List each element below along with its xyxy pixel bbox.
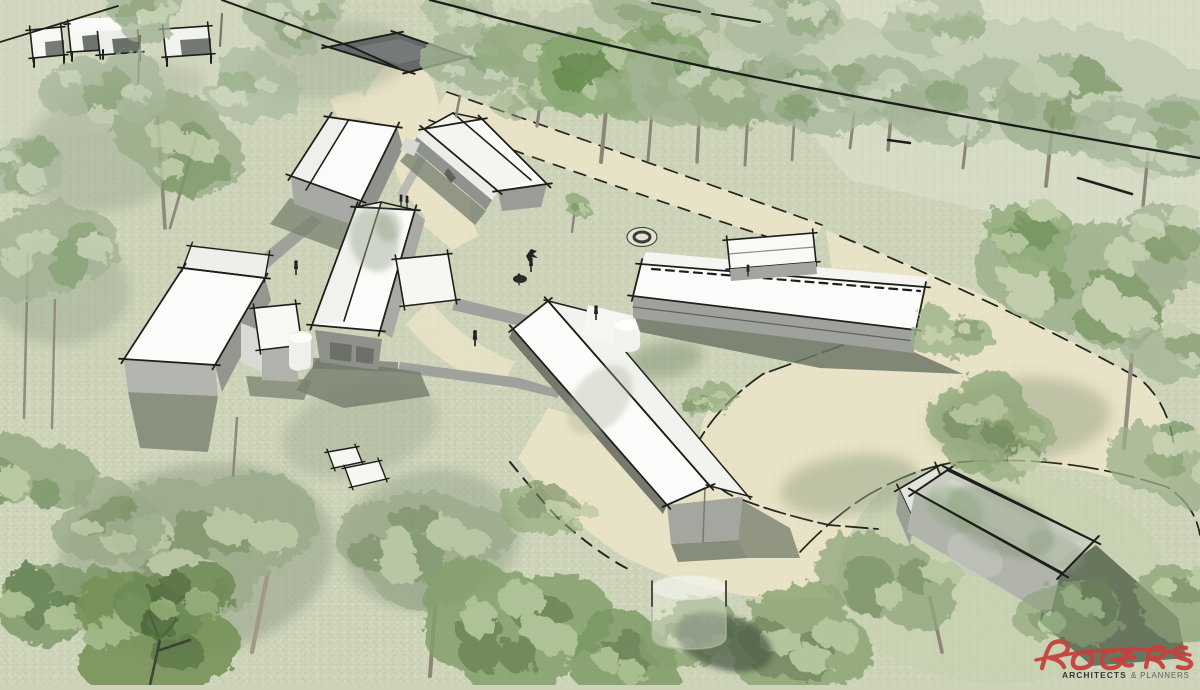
svg-text:& PLANNERS: & PLANNERS [1131, 671, 1190, 680]
svg-text:ARCHITECTS: ARCHITECTS [1062, 670, 1127, 680]
